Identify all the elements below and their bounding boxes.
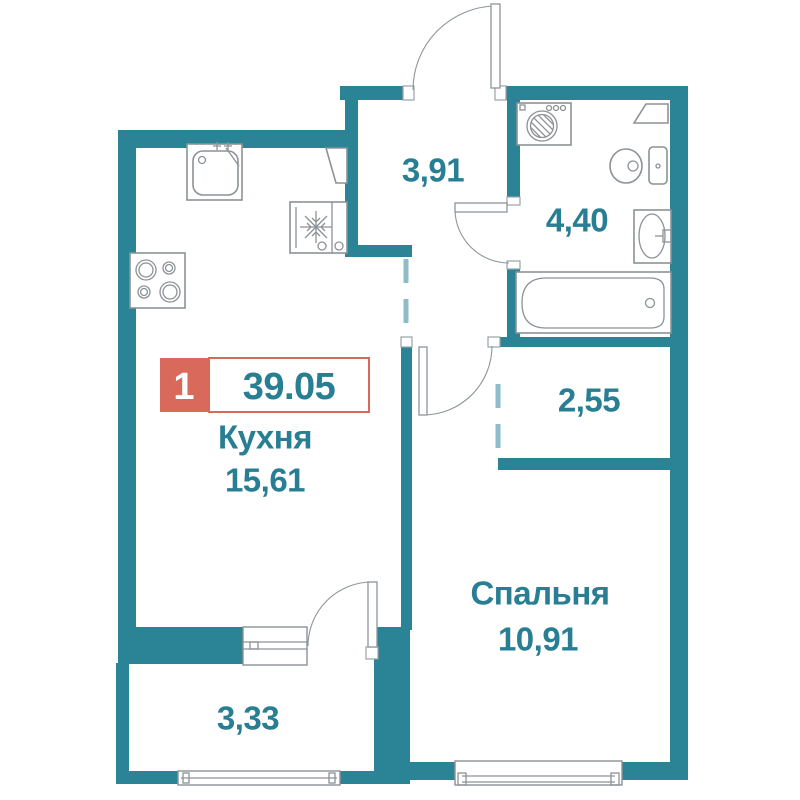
washing-machine [517,103,571,145]
entrance-door-leaf [491,4,500,88]
bathroom-door-leaf [455,203,507,212]
room-count-value: 1 [173,366,194,408]
hallway-area-label: 3,91 [402,152,464,189]
kitchen-sink [187,142,242,200]
floor-plan-page: 3,91 4,40 2,55 Кухня 15,61 Спальня 10,91… [0,0,800,800]
kitchen-name-label: Кухня [218,419,312,456]
floor-plan: 3,91 4,40 2,55 Кухня 15,61 Спальня 10,91… [0,0,800,800]
bathroom-sink [634,210,671,263]
apartment-badge: 1 39.05 [160,358,369,412]
bedroom-door-leaf [419,347,427,415]
balcony-glazing [178,771,340,785]
balcony-area-label: 3,33 [217,700,279,737]
total-area-value: 39.05 [243,366,336,408]
bathroom-area-label: 4,40 [546,202,608,239]
kitchen-balcony-window [243,627,307,665]
balcony-door-leaf [368,582,377,647]
closet-area-label: 2,55 [558,382,620,419]
fridge [290,202,347,253]
bathtub [516,272,671,333]
kitchen-area-label: 15,61 [225,462,305,499]
bedroom-name-label: Спальня [470,575,609,612]
bedroom-area-label: 10,91 [498,621,578,658]
stove [130,253,185,308]
bedroom-window [455,761,622,785]
